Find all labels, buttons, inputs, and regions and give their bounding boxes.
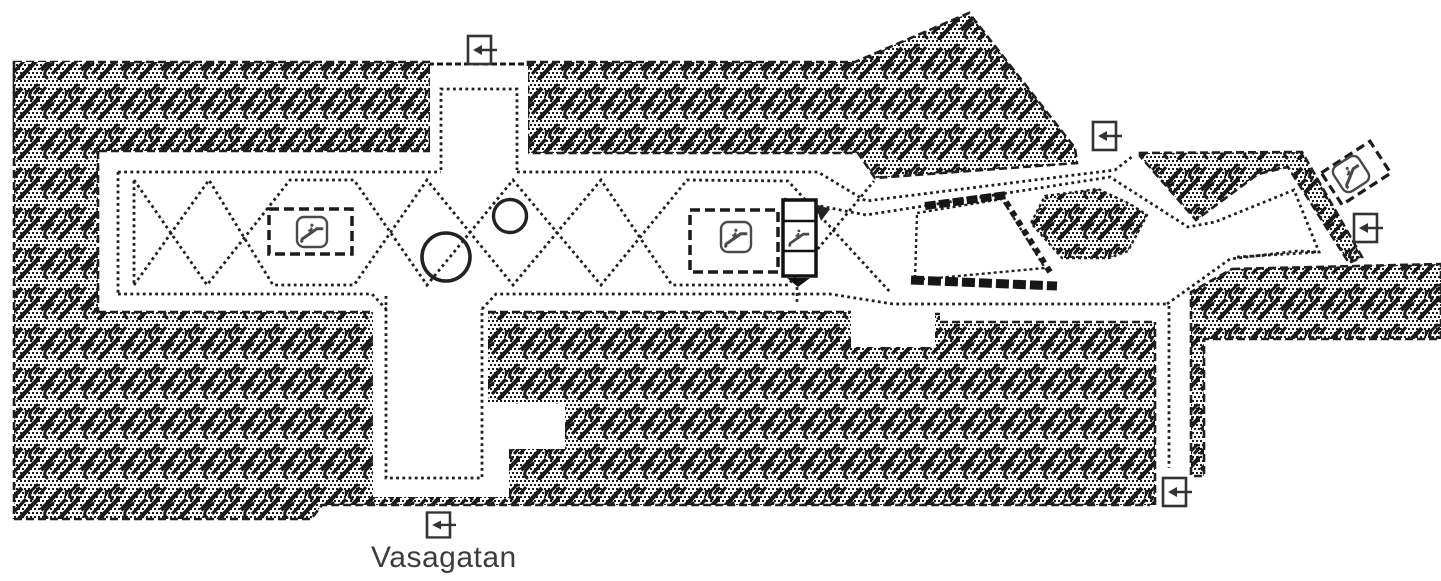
svg-text:Vasagatan: Vasagatan [371, 541, 517, 574]
